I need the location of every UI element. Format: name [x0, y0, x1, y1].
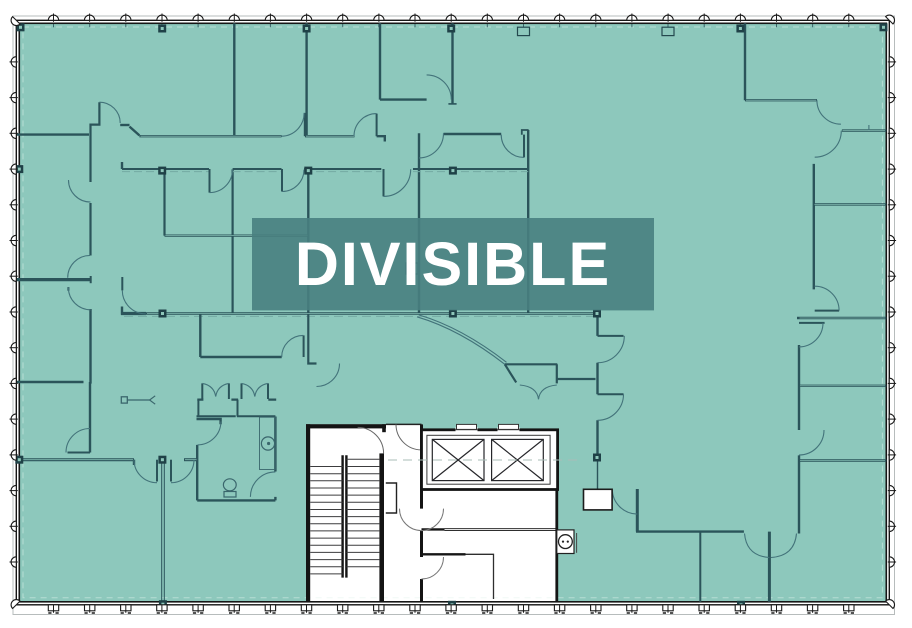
svg-text:DIVISIBLE: DIVISIBLE — [295, 230, 611, 298]
